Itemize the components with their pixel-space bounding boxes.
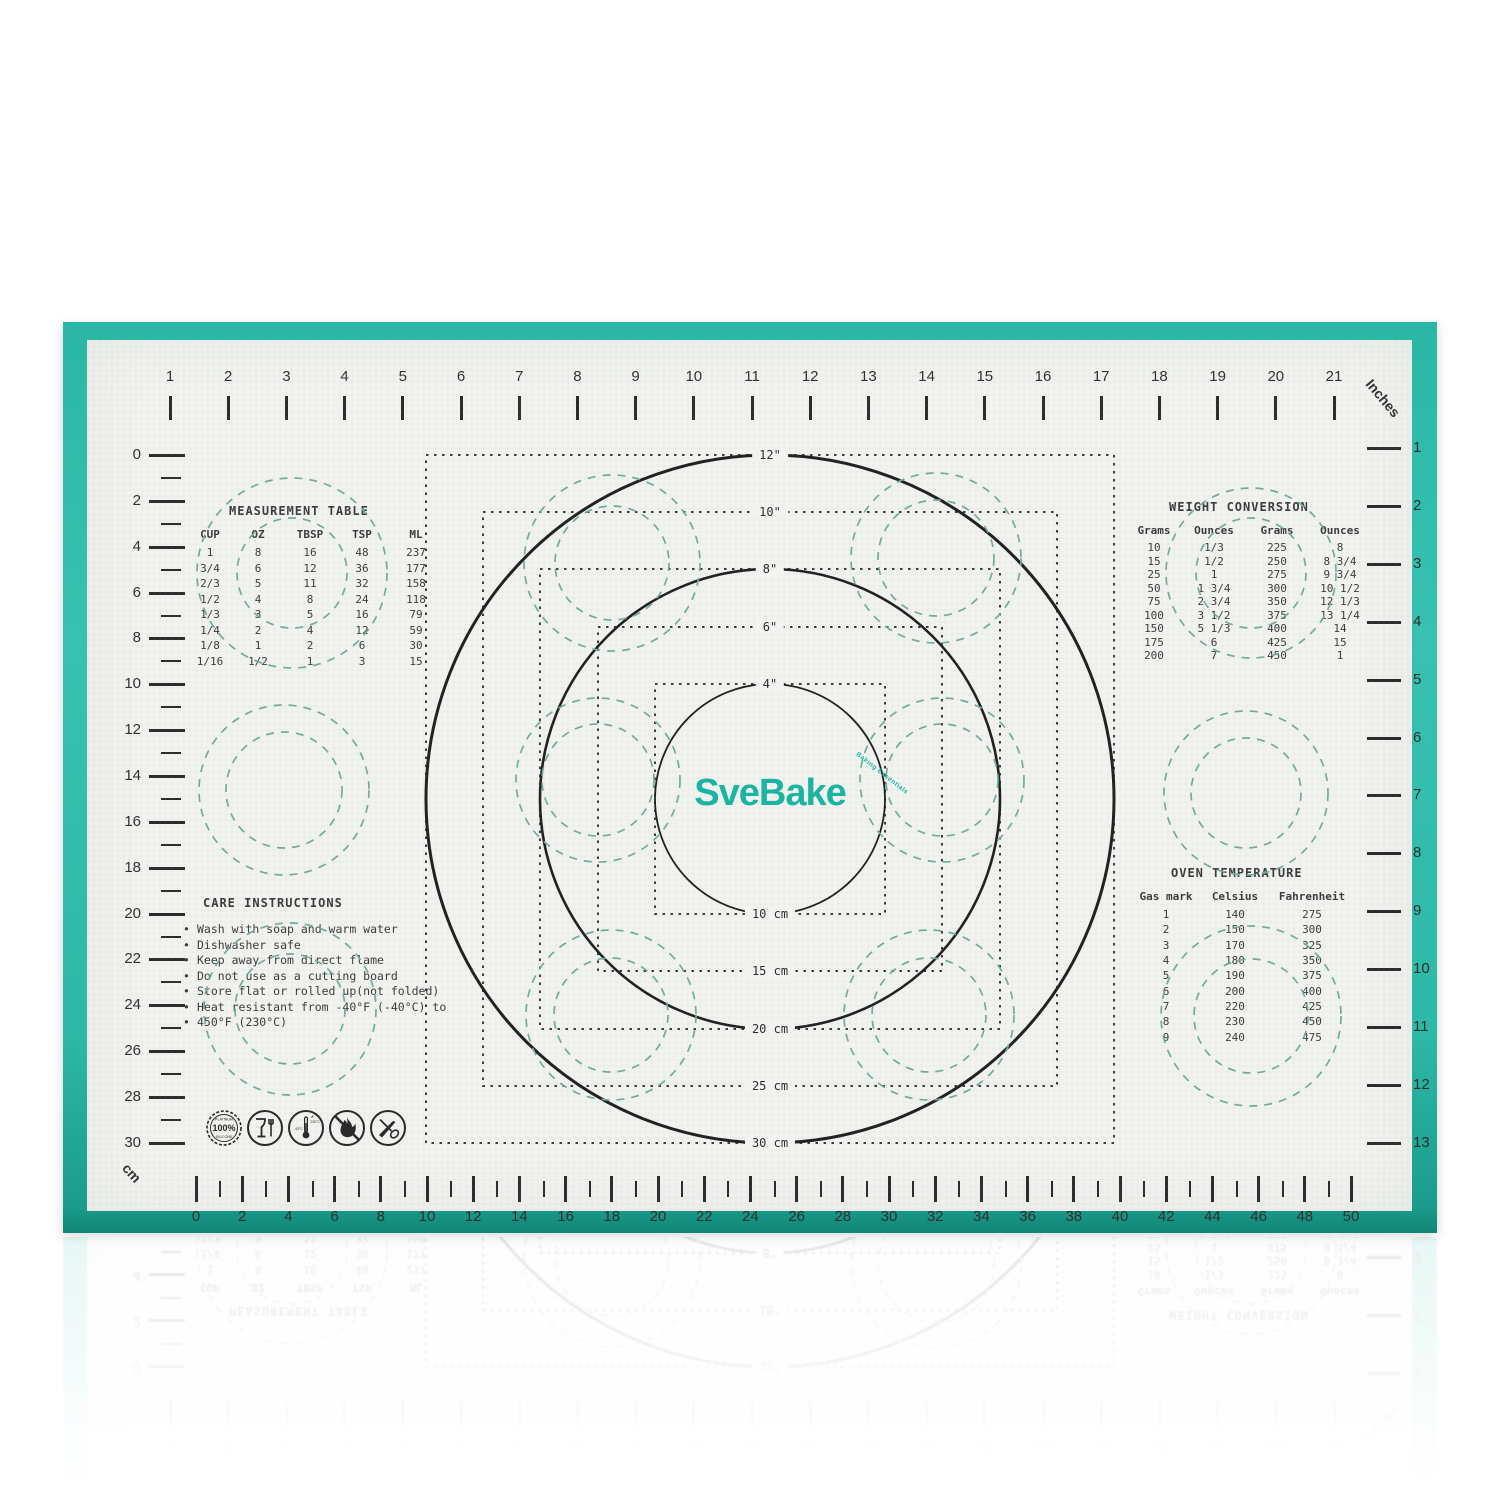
circle-cm-label: 15 cm xyxy=(745,964,795,978)
circle-inch-label: 10" xyxy=(752,505,788,519)
svg-text:SILICONE: SILICONE xyxy=(216,1135,233,1139)
reflection-fade xyxy=(0,1233,1500,1500)
mat-surface: 123456789101112131415161718192021 123456… xyxy=(87,340,1412,1211)
circle-cm-label: 25 cm xyxy=(745,1079,795,1093)
svg-text:-40°C: -40°C xyxy=(294,1127,303,1131)
brand-name: SveBake xyxy=(694,772,845,814)
circle-cm-label: 10 cm xyxy=(745,907,795,921)
svg-text:PLATINUM: PLATINUM xyxy=(215,1118,233,1122)
baking-mat: 123456789101112131415161718192021 123456… xyxy=(63,322,1437,1233)
circle-inch-label: 12" xyxy=(752,448,788,462)
circle-inch-label: 8" xyxy=(756,562,784,576)
platinum-silicone-badge-icon: PLATINUM 100% SILICONE xyxy=(205,1109,243,1147)
circle-cm-label: 20 cm xyxy=(745,1022,795,1036)
product-photo: { "product": { "brand": "SveBake", "tagl… xyxy=(0,0,1500,1500)
food-safe-icon xyxy=(246,1109,284,1147)
safety-icons-row: PLATINUM 100% SILICONE -40°C 230°C xyxy=(205,1109,407,1147)
svg-text:230°C: 230°C xyxy=(311,1120,321,1124)
circle-inch-label: 6" xyxy=(756,620,784,634)
brand-logo: SveBake Baking Essentials xyxy=(660,772,880,815)
circle-inch-label: 4" xyxy=(756,677,784,691)
temperature-range-icon: -40°C 230°C xyxy=(287,1109,325,1147)
svg-text:100%: 100% xyxy=(212,1123,235,1133)
no-cutting-utensils-icon xyxy=(369,1109,407,1147)
no-open-flame-icon xyxy=(328,1109,366,1147)
circle-cm-label: 30 cm xyxy=(745,1136,795,1150)
